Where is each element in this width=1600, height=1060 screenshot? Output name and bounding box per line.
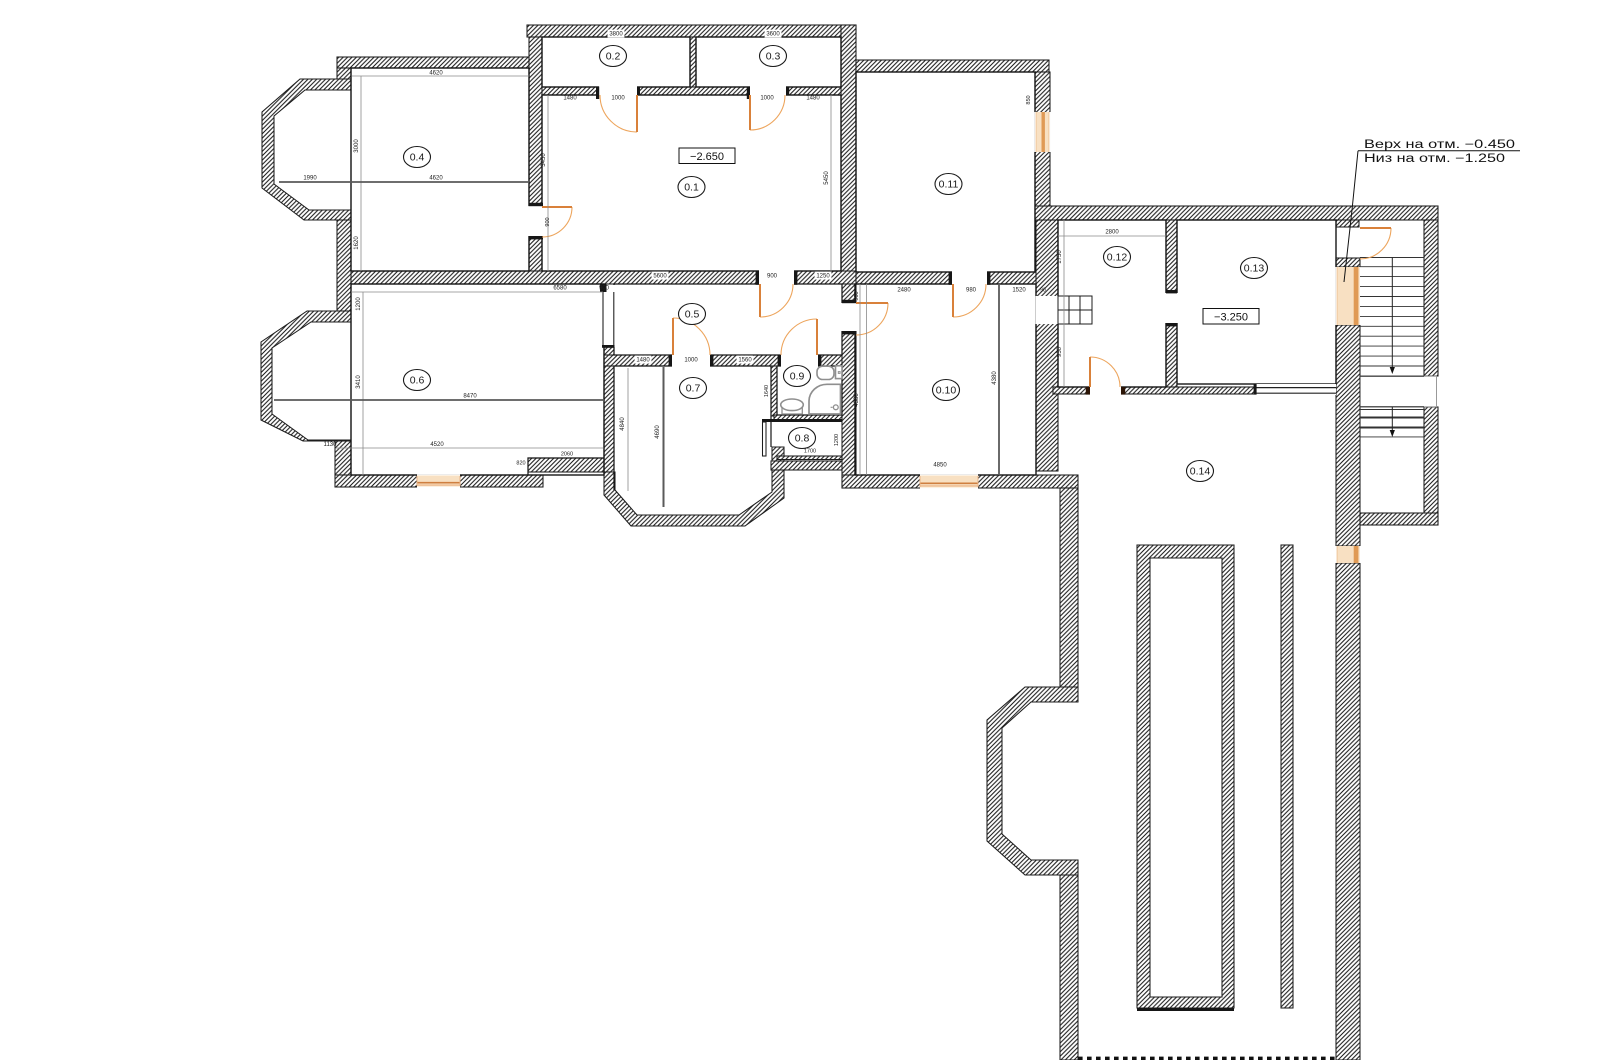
svg-text:90: 90 bbox=[1040, 288, 1046, 294]
svg-text:4620: 4620 bbox=[429, 71, 443, 77]
svg-text:Верх на отм. −0.450: Верх на отм. −0.450 bbox=[1364, 139, 1515, 151]
svg-text:6580: 6580 bbox=[553, 286, 567, 292]
svg-text:5450: 5450 bbox=[824, 171, 830, 185]
svg-text:0.13: 0.13 bbox=[1244, 263, 1265, 275]
svg-text:3450: 3450 bbox=[541, 153, 547, 167]
svg-text:1560: 1560 bbox=[738, 358, 752, 364]
svg-text:1480: 1480 bbox=[806, 96, 820, 102]
svg-text:0.8: 0.8 bbox=[795, 433, 810, 445]
svg-text:0.5: 0.5 bbox=[685, 309, 700, 321]
svg-text:4690: 4690 bbox=[655, 425, 661, 439]
svg-text:1000: 1000 bbox=[684, 358, 698, 364]
svg-text:0.4: 0.4 bbox=[410, 152, 425, 164]
svg-text:1200: 1200 bbox=[356, 297, 362, 311]
svg-text:−2.650: −2.650 bbox=[690, 151, 724, 163]
svg-text:0.2: 0.2 bbox=[606, 51, 621, 63]
svg-text:4380: 4380 bbox=[854, 393, 860, 407]
svg-text:1700: 1700 bbox=[804, 449, 816, 455]
svg-text:4840: 4840 bbox=[620, 417, 626, 431]
svg-text:1990: 1990 bbox=[303, 176, 317, 182]
svg-text:1000: 1000 bbox=[611, 96, 625, 102]
svg-text:900: 900 bbox=[854, 291, 860, 300]
svg-text:0.9: 0.9 bbox=[790, 371, 805, 383]
svg-text:900: 900 bbox=[599, 286, 610, 292]
svg-text:4850: 4850 bbox=[933, 463, 947, 469]
svg-text:1480: 1480 bbox=[636, 358, 650, 364]
svg-text:900: 900 bbox=[767, 274, 778, 280]
svg-text:4520: 4520 bbox=[430, 442, 444, 448]
svg-text:1000: 1000 bbox=[760, 96, 774, 102]
svg-text:3000: 3000 bbox=[354, 139, 360, 153]
svg-text:2060: 2060 bbox=[561, 452, 573, 458]
svg-text:−3.250: −3.250 bbox=[1214, 312, 1248, 324]
svg-text:1520: 1520 bbox=[1012, 288, 1026, 294]
svg-text:Низ на отм. −1.250: Низ на отм. −1.250 bbox=[1364, 153, 1505, 165]
svg-text:2480: 2480 bbox=[897, 288, 911, 294]
svg-text:4380: 4380 bbox=[992, 371, 998, 385]
svg-text:1200: 1200 bbox=[834, 434, 840, 446]
svg-text:1620: 1620 bbox=[354, 236, 360, 250]
svg-text:1640: 1640 bbox=[764, 385, 770, 397]
svg-text:0.6: 0.6 bbox=[410, 375, 425, 387]
svg-text:3600: 3600 bbox=[766, 32, 780, 38]
svg-text:0.1: 0.1 bbox=[684, 182, 699, 194]
svg-text:850: 850 bbox=[1026, 95, 1032, 104]
svg-text:1130: 1130 bbox=[324, 442, 338, 448]
svg-text:8470: 8470 bbox=[463, 394, 477, 400]
svg-text:980: 980 bbox=[966, 288, 977, 294]
svg-text:0.14: 0.14 bbox=[1190, 466, 1211, 478]
svg-text:3800: 3800 bbox=[609, 32, 623, 38]
svg-text:820: 820 bbox=[516, 461, 525, 467]
svg-text:4620: 4620 bbox=[429, 176, 443, 182]
svg-text:3410: 3410 bbox=[356, 375, 362, 389]
svg-text:1250: 1250 bbox=[816, 274, 830, 280]
svg-text:0.3: 0.3 bbox=[766, 51, 781, 63]
svg-text:1480: 1480 bbox=[563, 96, 577, 102]
svg-text:0.12: 0.12 bbox=[1107, 252, 1128, 264]
svg-text:0.7: 0.7 bbox=[686, 383, 701, 395]
svg-text:900: 900 bbox=[545, 217, 551, 226]
svg-text:1750: 1750 bbox=[1057, 250, 1063, 264]
svg-text:0.10: 0.10 bbox=[936, 385, 957, 397]
svg-text:0.11: 0.11 bbox=[939, 179, 959, 191]
svg-text:5600: 5600 bbox=[653, 274, 667, 280]
svg-text:950: 950 bbox=[1057, 346, 1063, 357]
svg-text:2800: 2800 bbox=[1105, 230, 1119, 236]
